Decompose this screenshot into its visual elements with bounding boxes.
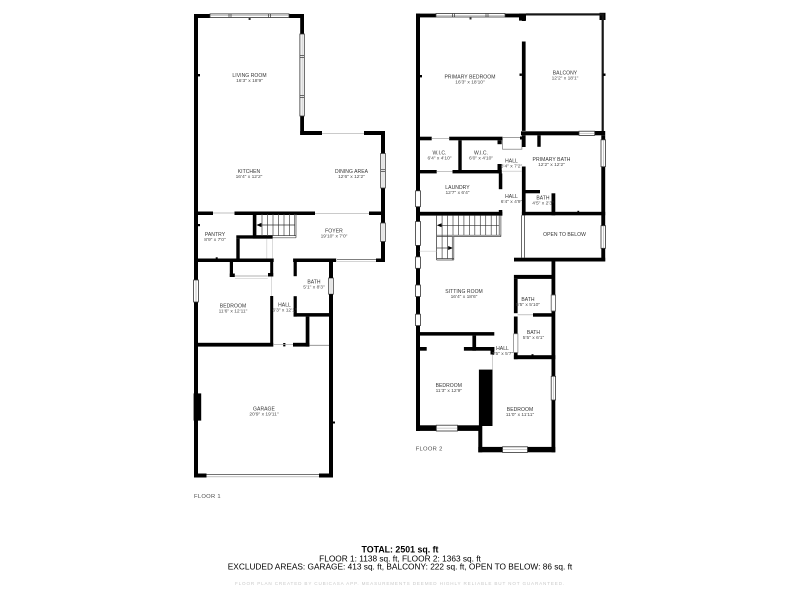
svg-text:6'4" x 4'10": 6'4" x 4'10" [427, 156, 451, 162]
svg-text:12'2" x 12'2": 12'2" x 12'2" [538, 162, 565, 168]
svg-text:5'5" x 5'10": 5'5" x 5'10" [516, 302, 540, 308]
svg-text:DINING AREA: DINING AREA [335, 169, 369, 175]
svg-text:PRIMARY BEDROOM: PRIMARY BEDROOM [444, 74, 495, 80]
svg-text:BATH: BATH [536, 196, 550, 202]
svg-text:BATH: BATH [527, 330, 541, 336]
svg-text:12'7" x 6'4": 12'7" x 6'4" [445, 190, 469, 196]
svg-text:16'3" x 18'9": 16'3" x 18'9" [236, 78, 263, 84]
svg-text:HALL: HALL [505, 194, 518, 200]
svg-text:8'9" x 7'0": 8'9" x 7'0" [204, 237, 226, 243]
svg-text:5'1" x 8'3": 5'1" x 8'3" [303, 285, 325, 291]
svg-text:W.I.C.: W.I.C. [474, 151, 488, 157]
svg-text:SITTING ROOM: SITTING ROOM [445, 289, 483, 295]
svg-text:6'3" x 12'1": 6'3" x 12'1" [272, 308, 296, 314]
svg-text:GARAGE: GARAGE [253, 407, 275, 413]
svg-text:11'0" x 11'11": 11'0" x 11'11" [506, 412, 535, 418]
svg-text:12'2" x 18'1": 12'2" x 18'1" [552, 76, 579, 82]
svg-text:BEDROOM: BEDROOM [507, 407, 533, 413]
svg-text:FOYER: FOYER [325, 229, 343, 235]
svg-text:11'6" x 12'11": 11'6" x 12'11" [219, 309, 248, 315]
svg-text:6'0" x 4'10": 6'0" x 4'10" [469, 156, 493, 162]
svg-text:LAUNDRY: LAUNDRY [445, 185, 470, 191]
svg-text:OPEN TO BELOW: OPEN TO BELOW [543, 232, 586, 238]
svg-text:19'10" x 7'0": 19'10" x 7'0" [321, 234, 348, 240]
svg-text:BATH: BATH [521, 297, 535, 303]
svg-text:HALL: HALL [505, 159, 518, 165]
svg-text:BALCONY: BALCONY [553, 71, 578, 77]
svg-text:20'9" x 19'11": 20'9" x 19'11" [249, 412, 278, 418]
svg-text:6'4" x 4'9": 6'4" x 4'9" [501, 199, 523, 205]
svg-text:16'3" x 18'10": 16'3" x 18'10" [455, 80, 485, 86]
svg-text:PRIMARY BATH: PRIMARY BATH [533, 157, 571, 163]
svg-text:W.I.C.: W.I.C. [432, 151, 446, 157]
svg-text:HALL: HALL [278, 303, 291, 309]
svg-text:FLOOR PLAN CREATED BY CUBICASA: FLOOR PLAN CREATED BY CUBICASA APP. MEAS… [235, 581, 565, 586]
svg-text:11'3" x 12'9": 11'3" x 12'9" [436, 388, 463, 394]
svg-text:FLOOR 1: FLOOR 1 [194, 494, 221, 500]
svg-text:EXCLUDED AREAS: GARAGE: 413 sq: EXCLUDED AREAS: GARAGE: 413 sq. ft, BALC… [228, 562, 573, 572]
svg-text:3'5" x 5'7": 3'5" x 5'7" [492, 351, 514, 357]
svg-text:3'4" x 7'2": 3'4" x 7'2" [501, 164, 523, 170]
svg-text:BATH: BATH [307, 280, 321, 286]
svg-text:HALL: HALL [496, 346, 509, 352]
svg-text:12'6" x 12'2": 12'6" x 12'2" [338, 174, 365, 180]
svg-text:FLOOR 2: FLOOR 2 [416, 447, 443, 453]
svg-text:BEDROOM: BEDROOM [220, 304, 246, 310]
svg-text:4'5" x 2'3": 4'5" x 2'3" [532, 201, 554, 207]
svg-text:PANTRY: PANTRY [205, 232, 226, 238]
svg-text:KITCHEN: KITCHEN [238, 169, 261, 175]
svg-text:5'5" x 6'1": 5'5" x 6'1" [523, 335, 545, 341]
svg-text:LIVING ROOM: LIVING ROOM [232, 73, 266, 79]
svg-text:BEDROOM: BEDROOM [436, 383, 462, 389]
svg-text:16'4" x 18'6": 16'4" x 18'6" [451, 294, 478, 300]
svg-text:16'4" x 12'2": 16'4" x 12'2" [236, 174, 263, 180]
